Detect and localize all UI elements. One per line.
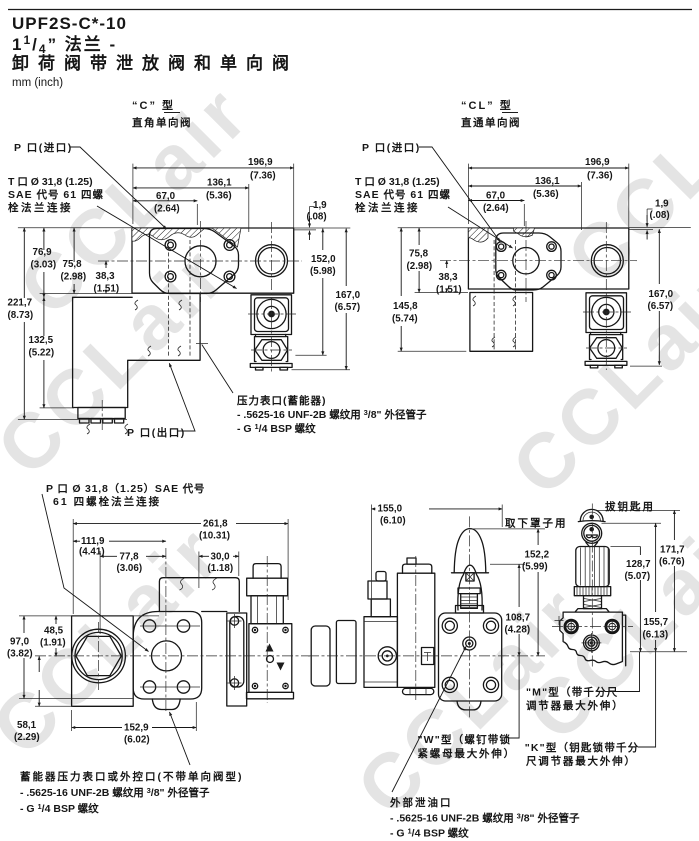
svg-text:(4.28): (4.28) bbox=[505, 625, 531, 636]
svg-text:(.08): (.08) bbox=[650, 210, 670, 221]
svg-text:SAE 代号 61 四螺: SAE 代号 61 四螺 bbox=[355, 188, 451, 201]
svg-text:(1.18): (1.18) bbox=[208, 563, 234, 574]
svg-text:栓法兰连接: 栓法兰连接 bbox=[355, 201, 420, 214]
svg-text:(6.57): (6.57) bbox=[335, 302, 361, 313]
svg-text:(6.76): (6.76) bbox=[659, 557, 685, 568]
svg-text:(2.64): (2.64) bbox=[154, 204, 180, 215]
svg-text:61 四螺栓法兰连接: 61 四螺栓法兰连接 bbox=[53, 495, 161, 508]
svg-text:48,5: 48,5 bbox=[44, 626, 64, 637]
svg-text:P 口(进口): P 口(进口) bbox=[362, 141, 421, 154]
svg-text:"M"型（带千分尺: "M"型（带千分尺 bbox=[526, 686, 619, 699]
svg-text:196,9: 196,9 bbox=[248, 157, 273, 168]
svg-text:(3.82): (3.82) bbox=[7, 649, 33, 660]
svg-text:1,9: 1,9 bbox=[313, 200, 327, 211]
svg-text:"K"型（钥匙锁带千分: "K"型（钥匙锁带千分 bbox=[525, 741, 640, 754]
svg-text:108,7: 108,7 bbox=[506, 613, 531, 624]
svg-text:取下罩子用: 取下罩子用 bbox=[505, 518, 568, 530]
svg-text:(5.74): (5.74) bbox=[392, 314, 418, 325]
svg-text:38,3: 38,3 bbox=[96, 271, 116, 282]
svg-text:直通单向阀: 直通单向阀 bbox=[461, 116, 521, 129]
svg-text:(6.02): (6.02) bbox=[124, 735, 150, 746]
svg-text:75,8: 75,8 bbox=[63, 259, 83, 270]
svg-text:(.08): (.08) bbox=[307, 212, 327, 223]
svg-text:(5.98): (5.98) bbox=[310, 266, 336, 277]
svg-text:75,8: 75,8 bbox=[409, 249, 429, 260]
svg-text:压力表口(蓄能器): 压力表口(蓄能器) bbox=[237, 394, 327, 407]
svg-text:SAE 代号 61 四螺: SAE 代号 61 四螺 bbox=[8, 188, 104, 201]
svg-text:196,9: 196,9 bbox=[585, 157, 610, 168]
svg-text:171,7: 171,7 bbox=[660, 545, 685, 556]
svg-text:111,9: 111,9 bbox=[81, 536, 105, 547]
svg-text:136,1: 136,1 bbox=[535, 176, 560, 187]
svg-text:(10.31): (10.31) bbox=[199, 531, 230, 542]
svg-text:UPF2S-C*-10: UPF2S-C*-10 bbox=[12, 14, 127, 33]
svg-text:- .5625-16 UNF-2B 螺纹用 3/8" 外径管: - .5625-16 UNF-2B 螺纹用 3/8" 外径管子 bbox=[237, 408, 427, 421]
svg-text:155,7: 155,7 bbox=[644, 617, 669, 628]
svg-text:“CL” 型: “CL” 型 bbox=[461, 98, 513, 112]
svg-text:76,9: 76,9 bbox=[33, 247, 53, 258]
svg-text:67,0: 67,0 bbox=[156, 191, 176, 202]
svg-text:(3.03): (3.03) bbox=[31, 260, 57, 271]
svg-text:261,8: 261,8 bbox=[203, 519, 228, 530]
svg-text:(2.98): (2.98) bbox=[407, 261, 433, 272]
svg-text:T 口 Ø 31,8 (1.25): T 口 Ø 31,8 (1.25) bbox=[8, 176, 93, 188]
svg-text:蓄能器压力表口或外控口(不带单向阀型): 蓄能器压力表口或外控口(不带单向阀型) bbox=[20, 770, 244, 783]
svg-text:(2.29): (2.29) bbox=[14, 732, 40, 743]
svg-text:P 口(出口): P 口(出口) bbox=[127, 426, 186, 439]
svg-text:- .5625-16 UNF-2B 螺纹用 3/8" 外径管: - .5625-16 UNF-2B 螺纹用 3/8" 外径管子 bbox=[390, 812, 580, 825]
svg-text:(1.51): (1.51) bbox=[94, 284, 120, 295]
svg-text:- G 1/4 BSP 螺纹: - G 1/4 BSP 螺纹 bbox=[237, 422, 316, 435]
svg-text:152,2: 152,2 bbox=[525, 550, 550, 561]
svg-text:167,0: 167,0 bbox=[336, 290, 361, 301]
svg-text:(5.99): (5.99) bbox=[522, 562, 548, 573]
svg-text:卸荷阀带泄放阀和单向阀: 卸荷阀带泄放阀和单向阀 bbox=[12, 53, 298, 73]
svg-text:(6.57): (6.57) bbox=[648, 301, 674, 312]
svg-text:152,9: 152,9 bbox=[124, 723, 149, 734]
svg-text:(5.36): (5.36) bbox=[206, 191, 232, 202]
svg-text:221,7: 221,7 bbox=[8, 298, 33, 309]
svg-text:外部泄油口: 外部泄油口 bbox=[389, 796, 453, 809]
svg-text:(6.13): (6.13) bbox=[643, 630, 669, 641]
svg-text:(7.36): (7.36) bbox=[250, 171, 276, 182]
svg-text:145,8: 145,8 bbox=[393, 301, 418, 312]
svg-text:(2.98): (2.98) bbox=[61, 272, 87, 283]
svg-text:栓法兰连接: 栓法兰连接 bbox=[8, 201, 73, 214]
svg-text:尺调节器最大外伸）: 尺调节器最大外伸） bbox=[526, 755, 637, 768]
svg-text:(5.36): (5.36) bbox=[533, 189, 559, 200]
svg-text:(6.10): (6.10) bbox=[380, 516, 406, 527]
svg-text:直角单向阀: 直角单向阀 bbox=[132, 116, 192, 129]
svg-text:(2.64): (2.64) bbox=[483, 203, 509, 214]
svg-text:97,0: 97,0 bbox=[10, 637, 30, 648]
svg-text:1,9: 1,9 bbox=[655, 199, 669, 210]
svg-text:38,3: 38,3 bbox=[439, 272, 459, 283]
svg-text:67,0: 67,0 bbox=[486, 191, 506, 202]
svg-text:152,0: 152,0 bbox=[311, 254, 336, 265]
svg-text:(5.22): (5.22) bbox=[29, 348, 55, 359]
svg-text:(5.07): (5.07) bbox=[625, 571, 651, 582]
svg-text:T 口 Ø 31,8 (1.25): T 口 Ø 31,8 (1.25) bbox=[355, 176, 440, 188]
svg-text:紧螺母最大外伸）: 紧螺母最大外伸） bbox=[418, 747, 516, 760]
svg-text:P 口 Ø 31,8（1.25）SAE 代号: P 口 Ø 31,8（1.25）SAE 代号 bbox=[46, 482, 205, 495]
svg-text:(1.91): (1.91) bbox=[40, 638, 66, 649]
svg-text:(1.51): (1.51) bbox=[436, 285, 462, 296]
svg-text:30,0: 30,0 bbox=[211, 552, 231, 563]
svg-text:- .5625-16 UNF-2B 螺纹用 3/8" 外径管: - .5625-16 UNF-2B 螺纹用 3/8" 外径管子 bbox=[20, 786, 210, 799]
svg-text:136,1: 136,1 bbox=[207, 178, 232, 189]
svg-text:(3.06): (3.06) bbox=[117, 563, 143, 574]
svg-text:P 口(进口): P 口(进口) bbox=[14, 141, 73, 154]
svg-text:132,5: 132,5 bbox=[29, 335, 54, 346]
svg-text:58,1: 58,1 bbox=[17, 720, 37, 731]
svg-text:155,0: 155,0 bbox=[378, 504, 403, 515]
svg-text:调节器最大外伸）: 调节器最大外伸） bbox=[526, 699, 624, 712]
svg-text:(7.36): (7.36) bbox=[587, 171, 613, 182]
svg-text:mm (inch): mm (inch) bbox=[12, 77, 63, 89]
svg-text:- G 1/4 BSP 螺纹: - G 1/4 BSP 螺纹 bbox=[390, 827, 469, 840]
svg-text:128,7: 128,7 bbox=[626, 559, 651, 570]
svg-text:(8.73): (8.73) bbox=[8, 310, 34, 321]
svg-text:77,8: 77,8 bbox=[120, 552, 140, 563]
svg-text:167,0: 167,0 bbox=[649, 289, 674, 300]
svg-text:拔钥匙用: 拔钥匙用 bbox=[605, 500, 655, 513]
svg-text:"W"型（螺钉带锁: "W"型（螺钉带锁 bbox=[418, 733, 512, 746]
svg-text:“C” 型: “C” 型 bbox=[132, 98, 175, 112]
svg-text:- G 1/4 BSP 螺纹: - G 1/4 BSP 螺纹 bbox=[20, 802, 99, 815]
